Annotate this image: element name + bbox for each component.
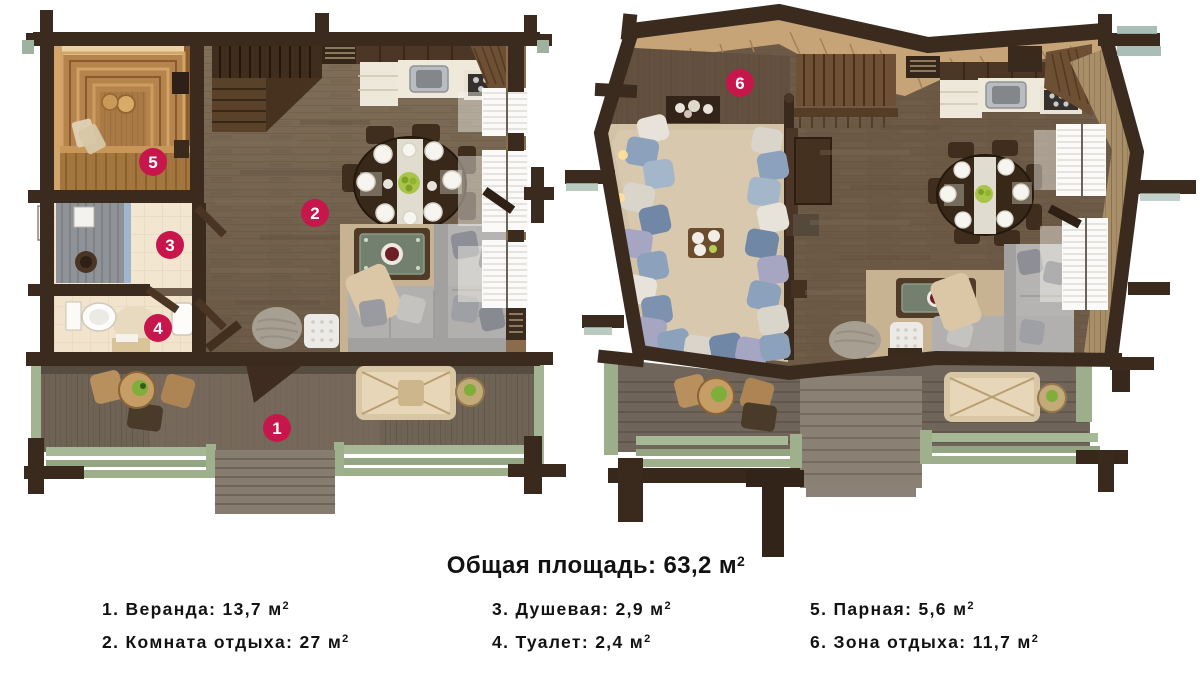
svg-text:2. Комната отдыха: 27 м2: 2. Комната отдыха: 27 м2	[102, 632, 350, 652]
svg-text:2: 2	[310, 204, 319, 223]
svg-text:3: 3	[165, 236, 174, 255]
svg-text:3. Душевая: 2,9 м2: 3. Душевая: 2,9 м2	[492, 599, 672, 619]
svg-text:1. Веранда: 13,7 м2: 1. Веранда: 13,7 м2	[102, 599, 290, 619]
svg-text:6. Зона отдыха: 11,7 м2: 6. Зона отдыха: 11,7 м2	[810, 632, 1039, 652]
svg-text:4. Туалет: 2,4 м2: 4. Туалет: 2,4 м2	[492, 632, 652, 652]
svg-text:5. Парная: 5,6 м2: 5. Парная: 5,6 м2	[810, 599, 975, 619]
svg-text:Общая площадь: 63,2 м2: Общая площадь: 63,2 м2	[447, 552, 745, 579]
svg-text:1: 1	[272, 419, 281, 438]
svg-text:5: 5	[148, 153, 157, 172]
svg-text:6: 6	[735, 74, 744, 93]
svg-text:4: 4	[153, 319, 163, 338]
